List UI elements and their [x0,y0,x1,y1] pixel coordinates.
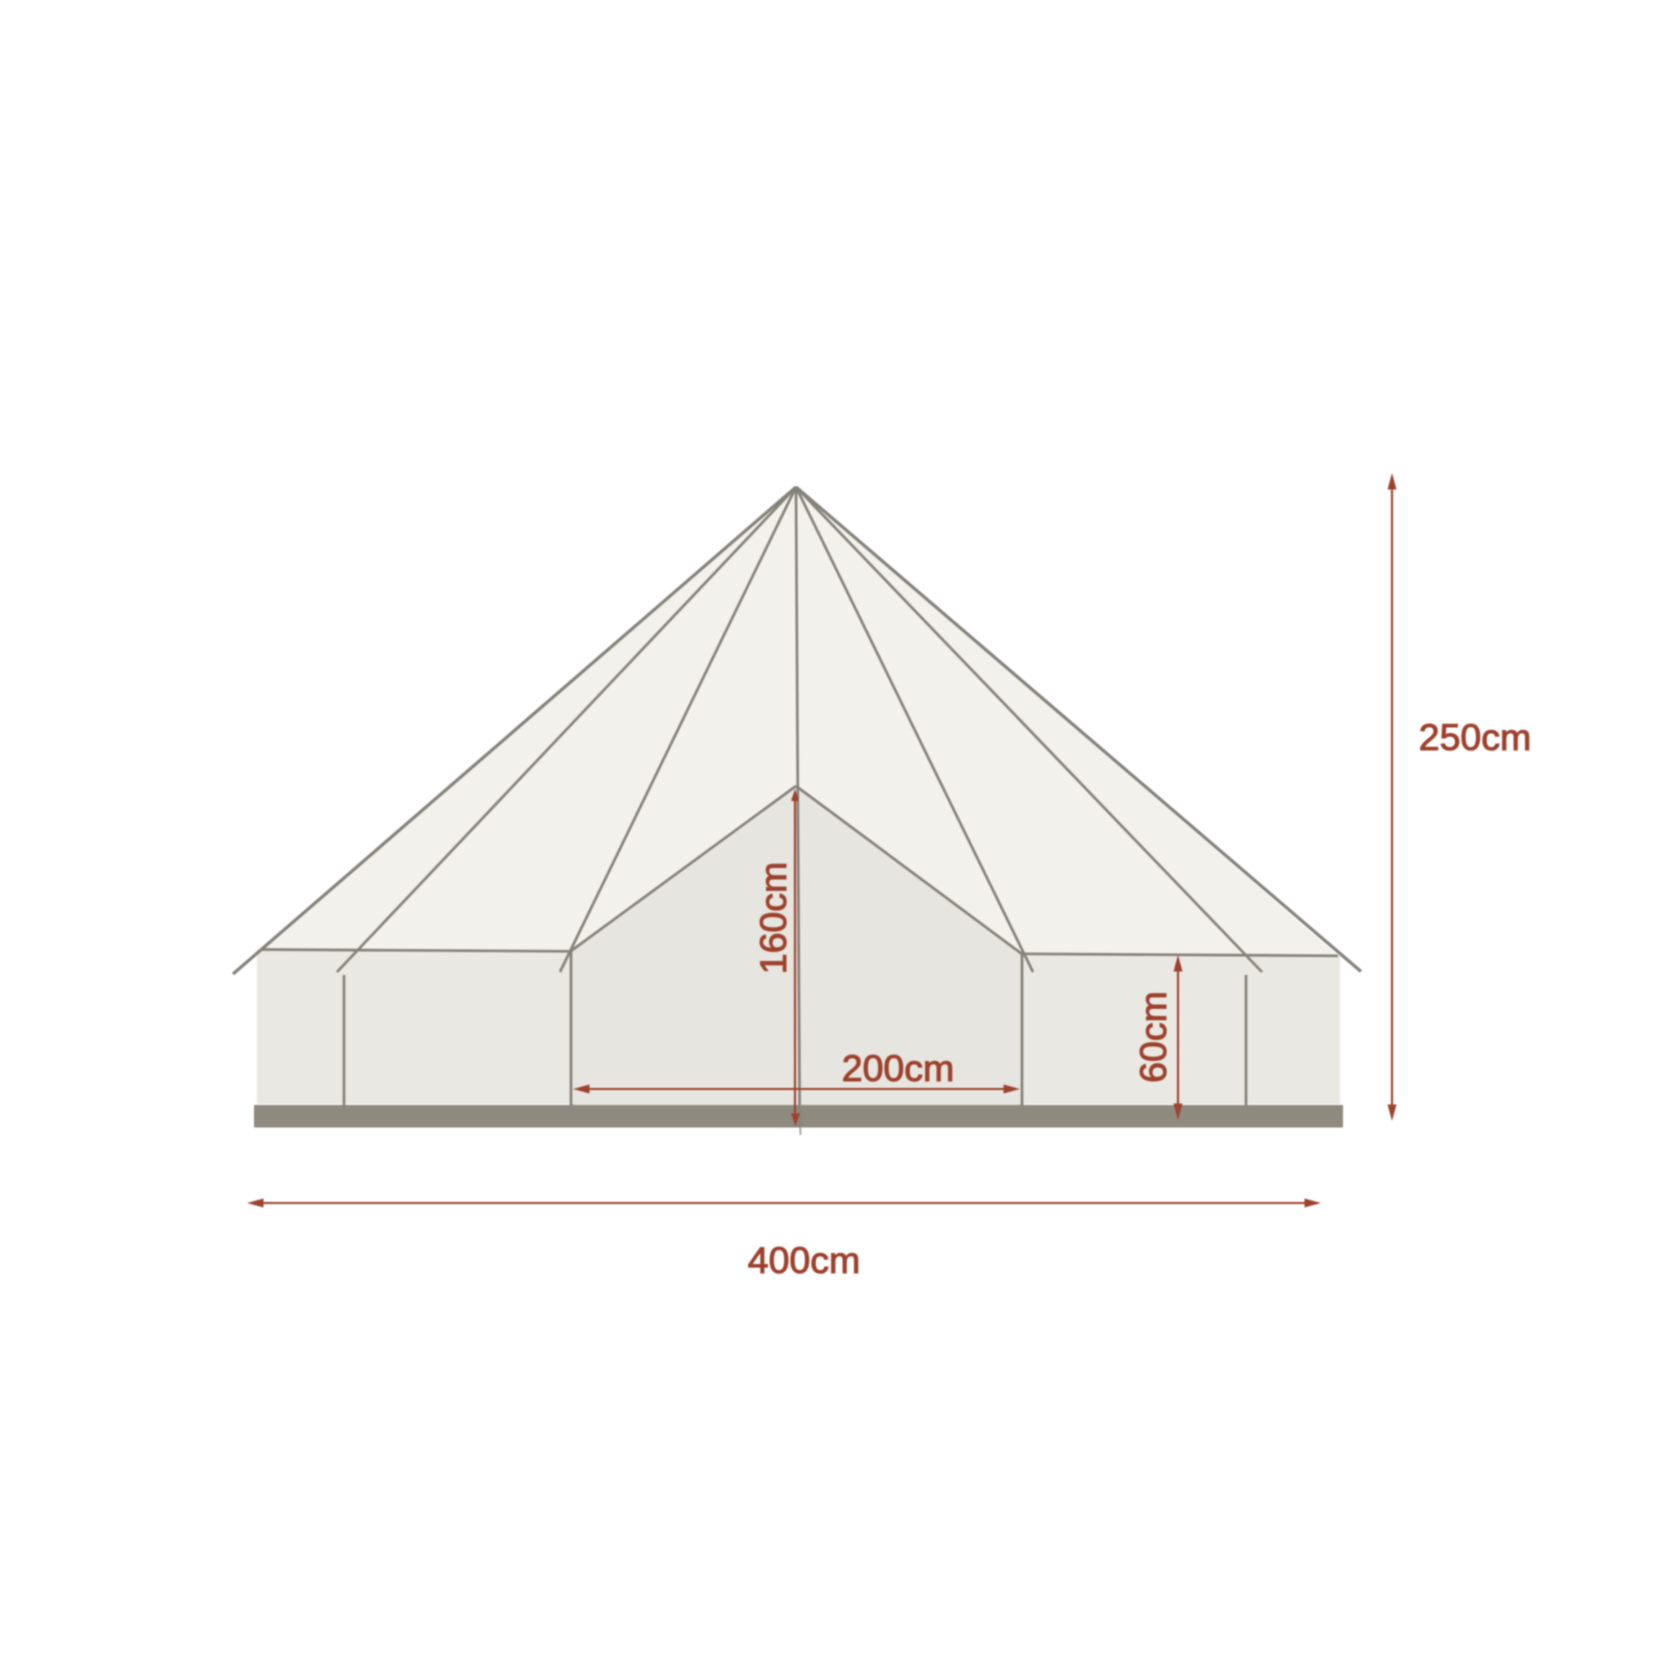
svg-text:60cm: 60cm [1132,991,1174,1083]
svg-text:400cm: 400cm [748,1239,861,1281]
svg-text:160cm: 160cm [752,862,794,975]
svg-text:250cm: 250cm [1419,716,1532,758]
svg-text:200cm: 200cm [842,1047,955,1089]
